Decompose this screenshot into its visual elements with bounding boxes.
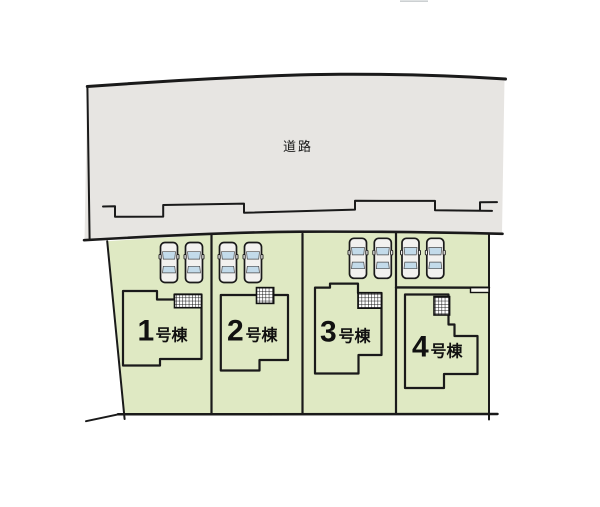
road-surface <box>85 74 505 240</box>
house-2-label-suffix: 号棟 <box>246 326 279 345</box>
car-icon <box>218 243 238 283</box>
house-1-label-number: 1 <box>138 315 155 348</box>
house-2-label-number: 2 <box>227 315 244 348</box>
house-3-label-suffix: 号棟 <box>339 327 372 346</box>
site-plan-drawing: 道路 1 号棟 <box>0 0 600 507</box>
site-plan-canvas: 道路 1 号棟 <box>0 0 600 507</box>
car-icon <box>159 243 179 283</box>
car-icon <box>425 238 445 278</box>
road-area: 道路 <box>85 74 506 240</box>
house-1-label-suffix: 号棟 <box>156 326 189 345</box>
road-label: 道路 <box>283 139 313 154</box>
house-4-label-suffix: 号棟 <box>431 342 464 361</box>
house-2-balcony-hatch <box>257 288 274 304</box>
car-icon <box>184 243 204 283</box>
bottom-boundary-left-extension <box>86 414 119 421</box>
car-icon <box>348 238 368 278</box>
car-icon <box>373 238 393 278</box>
car-icon <box>401 238 421 278</box>
house-3-label-number: 3 <box>320 316 337 349</box>
house-4-balcony-hatch <box>434 297 450 315</box>
house-4-label-number: 4 <box>412 331 429 364</box>
lot4-entrance-step <box>471 288 490 293</box>
car-icon <box>243 243 263 283</box>
house-1-balcony-hatch <box>175 295 202 308</box>
house-3-balcony-hatch <box>358 293 382 308</box>
